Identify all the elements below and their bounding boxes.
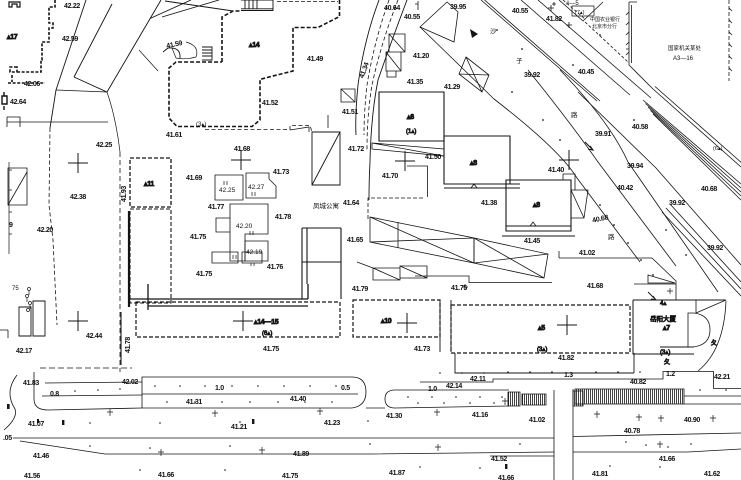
- svg-text:40.68: 40.68: [701, 186, 717, 193]
- svg-text:41.65: 41.65: [347, 237, 363, 244]
- svg-text:41.77: 41.77: [208, 204, 224, 211]
- svg-text:▴14: ▴14: [248, 42, 260, 49]
- svg-text:41.73: 41.73: [414, 346, 430, 353]
- svg-text:子: 子: [516, 57, 523, 65]
- svg-text:北京市分行: 北京市分行: [592, 23, 617, 30]
- svg-text:40.78: 40.78: [624, 428, 640, 435]
- svg-text:41.38: 41.38: [481, 200, 497, 207]
- svg-text:40.82: 40.82: [630, 379, 646, 386]
- svg-text:42.27: 42.27: [248, 184, 265, 191]
- svg-text:40.45: 40.45: [578, 69, 594, 76]
- svg-text:41.66: 41.66: [498, 475, 514, 480]
- svg-text:1.2: 1.2: [666, 371, 675, 378]
- svg-text:41.49: 41.49: [307, 56, 323, 63]
- svg-text:41.68: 41.68: [234, 146, 250, 153]
- svg-text:凤城公寓: 凤城公寓: [313, 201, 339, 210]
- svg-text:0.8: 0.8: [50, 391, 59, 398]
- svg-text:40.42: 40.42: [617, 185, 633, 192]
- svg-text:41.31: 41.31: [186, 399, 202, 406]
- svg-text:中国农业银行: 中国农业银行: [590, 16, 620, 23]
- svg-text:41.02: 41.02: [529, 417, 545, 424]
- svg-text:0.5: 0.5: [341, 385, 350, 392]
- svg-text:(3▴): (3▴): [196, 122, 206, 128]
- svg-text:41.82: 41.82: [546, 16, 562, 23]
- svg-text:41.68: 41.68: [587, 283, 603, 290]
- svg-text:41.78: 41.78: [125, 337, 132, 353]
- svg-text:41.93: 41.93: [121, 186, 128, 202]
- svg-text:40.58: 40.58: [632, 124, 648, 131]
- svg-text:41.81: 41.81: [592, 471, 608, 478]
- svg-text:▴10: ▴10: [380, 318, 392, 325]
- svg-text:路: 路: [571, 110, 578, 119]
- svg-text:(7▴): (7▴): [575, 10, 585, 16]
- svg-text:1.3: 1.3: [564, 372, 573, 379]
- svg-text:41.23: 41.23: [324, 420, 340, 427]
- svg-text:42.22: 42.22: [64, 3, 80, 10]
- svg-text:41.69: 41.69: [186, 175, 202, 182]
- svg-text:(6▴): (6▴): [262, 331, 272, 337]
- svg-text:41.40: 41.40: [290, 396, 306, 403]
- svg-text:41.51: 41.51: [342, 109, 358, 116]
- svg-text:41.72: 41.72: [348, 146, 364, 153]
- svg-text:▴8: ▴8: [532, 202, 540, 209]
- svg-text:42.19: 42.19: [246, 249, 263, 256]
- svg-text:.05: .05: [3, 435, 12, 442]
- svg-text:41.29: 41.29: [444, 84, 460, 91]
- svg-text:39.91: 39.91: [595, 131, 611, 138]
- svg-text:41.66: 41.66: [158, 472, 174, 479]
- svg-text:▴5: ▴5: [537, 325, 545, 332]
- svg-text:路: 路: [608, 232, 615, 241]
- svg-text:41.56: 41.56: [24, 473, 40, 480]
- svg-text:42.14: 42.14: [446, 383, 462, 390]
- svg-text:1.0: 1.0: [428, 386, 437, 393]
- svg-text:39.95: 39.95: [450, 4, 466, 11]
- svg-text:41.76: 41.76: [267, 264, 283, 271]
- svg-text:75: 75: [12, 286, 19, 292]
- svg-text:42.11: 42.11: [470, 376, 486, 383]
- svg-text:41.45: 41.45: [524, 238, 540, 245]
- svg-text:41.35: 41.35: [407, 79, 423, 86]
- svg-text:41.07: 41.07: [28, 421, 44, 428]
- svg-text:#—5: #—5: [566, 1, 579, 7]
- svg-text:41.75: 41.75: [196, 271, 212, 278]
- svg-text:41.79: 41.79: [352, 286, 368, 293]
- svg-text:A3—16: A3—16: [673, 56, 694, 62]
- svg-text:(1▴): (1▴): [406, 129, 416, 135]
- svg-text:夂: 夂: [711, 339, 717, 347]
- svg-text:▴11: ▴11: [143, 181, 154, 188]
- svg-text:41.75: 41.75: [282, 473, 298, 480]
- svg-text:岳阳大厦: 岳阳大厦: [650, 314, 677, 323]
- svg-text:41.02: 41.02: [579, 250, 595, 257]
- svg-text:41.70: 41.70: [382, 173, 398, 180]
- svg-text:▴6: ▴6: [406, 114, 414, 121]
- svg-text:41.75: 41.75: [190, 234, 206, 241]
- svg-text:39.92: 39.92: [524, 72, 540, 79]
- svg-text:41.66: 41.66: [659, 456, 675, 463]
- svg-text:(6▴): (6▴): [713, 146, 723, 152]
- svg-text:42.59: 42.59: [62, 36, 78, 43]
- svg-text:41.40: 41.40: [548, 167, 564, 174]
- svg-text:9: 9: [9, 222, 13, 229]
- svg-text:42.25: 42.25: [96, 142, 112, 149]
- svg-text:42.02: 42.02: [122, 379, 138, 386]
- svg-text:4▴: 4▴: [660, 301, 666, 307]
- svg-text:1.0: 1.0: [215, 385, 224, 392]
- svg-text:42.25: 42.25: [219, 187, 236, 194]
- svg-text:41.75: 41.75: [451, 285, 467, 292]
- svg-text:▴14—15: ▴14—15: [253, 319, 279, 326]
- svg-text:(3▴): (3▴): [660, 350, 670, 356]
- svg-text:41.30: 41.30: [386, 413, 402, 420]
- svg-text:41.61: 41.61: [166, 132, 182, 139]
- svg-text:42.21: 42.21: [714, 374, 730, 381]
- svg-text:39.92: 39.92: [707, 245, 723, 252]
- svg-text:▴17: ▴17: [6, 34, 18, 41]
- svg-text:41.46: 41.46: [33, 453, 49, 460]
- svg-text:40.90: 40.90: [684, 417, 700, 424]
- svg-text:42.64: 42.64: [10, 99, 26, 106]
- svg-text:39.92: 39.92: [669, 200, 685, 207]
- svg-text:▴8: ▴8: [469, 160, 477, 167]
- svg-text:41.83: 41.83: [23, 380, 39, 387]
- svg-text:41.52: 41.52: [262, 100, 278, 107]
- svg-text:41.20: 41.20: [413, 53, 429, 60]
- svg-text:41.21: 41.21: [231, 424, 247, 431]
- svg-text:42.06: 42.06: [24, 81, 40, 88]
- svg-text:39.94: 39.94: [627, 163, 643, 170]
- svg-text:(3▴): (3▴): [537, 347, 547, 353]
- svg-text:41.16: 41.16: [472, 412, 488, 419]
- svg-text:42.44: 42.44: [86, 333, 102, 340]
- svg-text:41.64: 41.64: [343, 200, 359, 207]
- svg-text:沙: 沙: [490, 28, 497, 35]
- svg-text:国家机关某处: 国家机关某处: [668, 44, 702, 52]
- svg-text:40.55: 40.55: [404, 14, 420, 21]
- svg-text:41.62: 41.62: [704, 471, 720, 478]
- svg-text:42.38: 42.38: [70, 194, 86, 201]
- svg-text:41.75: 41.75: [263, 346, 279, 353]
- svg-text:42.20: 42.20: [236, 223, 253, 230]
- svg-text:41.50: 41.50: [425, 154, 441, 161]
- svg-text:40.55: 40.55: [512, 8, 528, 15]
- svg-text:41.52: 41.52: [491, 456, 507, 463]
- svg-text:夂: 夂: [664, 358, 670, 366]
- svg-text:41.73: 41.73: [273, 169, 289, 176]
- svg-text:41.82: 41.82: [558, 355, 574, 362]
- svg-text:▴7: ▴7: [662, 325, 670, 332]
- svg-text:41.87: 41.87: [389, 470, 405, 477]
- svg-text:40.64: 40.64: [384, 5, 400, 12]
- svg-text:42.20: 42.20: [37, 227, 53, 234]
- svg-text:42.17: 42.17: [16, 348, 32, 355]
- svg-text:41.78: 41.78: [275, 214, 291, 221]
- svg-text:41.89: 41.89: [293, 451, 309, 458]
